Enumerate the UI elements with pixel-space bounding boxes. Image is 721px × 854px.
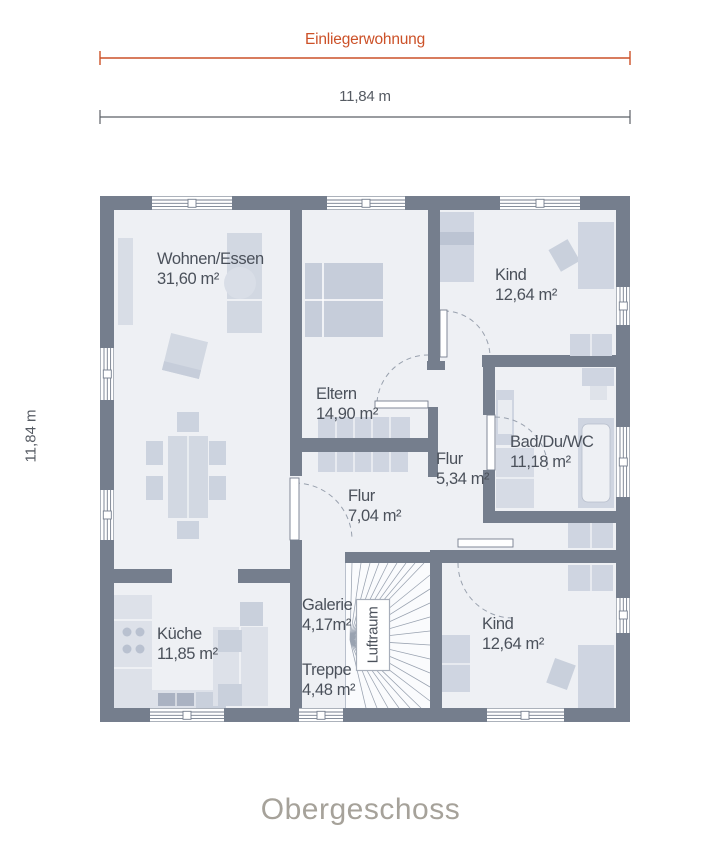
staircase [345, 563, 430, 708]
hall-closet [318, 452, 408, 472]
room-label-kind-top: Kind12,64 m² [495, 265, 557, 305]
room-label-kind-bottom: Kind12,64 m² [482, 614, 544, 654]
door-leaf-kind-bottom [458, 539, 513, 547]
room-label-flur-klein: Flur5,34 m² [436, 449, 489, 489]
top-width-dimension-line [100, 110, 630, 124]
washbasin [498, 400, 512, 434]
floor-plan-drawing [0, 0, 721, 854]
single-bed [578, 645, 614, 708]
room-label-flur-gross: Flur7,04 m² [348, 486, 401, 526]
room-label-eltern: Eltern14,90 m² [316, 384, 378, 424]
room-label-bad: Bad/Du/WC11,18 m² [510, 432, 594, 472]
door-leaf-kind-top [440, 310, 447, 357]
door-leaf-eltern [375, 401, 428, 408]
width-dimension-label: 11,84 m [100, 88, 630, 105]
room-label-wohnen-essen: Wohnen/Essen31,60 m² [157, 249, 264, 289]
room-label-treppe: Treppe4,48 m² [302, 660, 355, 700]
void-label-luftraum: Luftraum [365, 607, 382, 664]
door-leaf-hall [290, 478, 299, 540]
apartment-zone-label: Einliegerwohnung [100, 31, 630, 49]
toilet [590, 386, 607, 400]
floorplan-page: Einliegerwohnung 11,84 m 11,84 m Wohnen/… [0, 0, 721, 854]
floor-title: Obergeschoss [0, 793, 721, 827]
room-label-galerie: Galerie4,17m² [302, 595, 352, 635]
single-bed [578, 222, 614, 289]
room-label-kueche: Küche11,85 m² [157, 624, 218, 664]
top-zone-dimension-line [100, 51, 630, 65]
height-dimension-label: 11,84 m [23, 409, 40, 462]
